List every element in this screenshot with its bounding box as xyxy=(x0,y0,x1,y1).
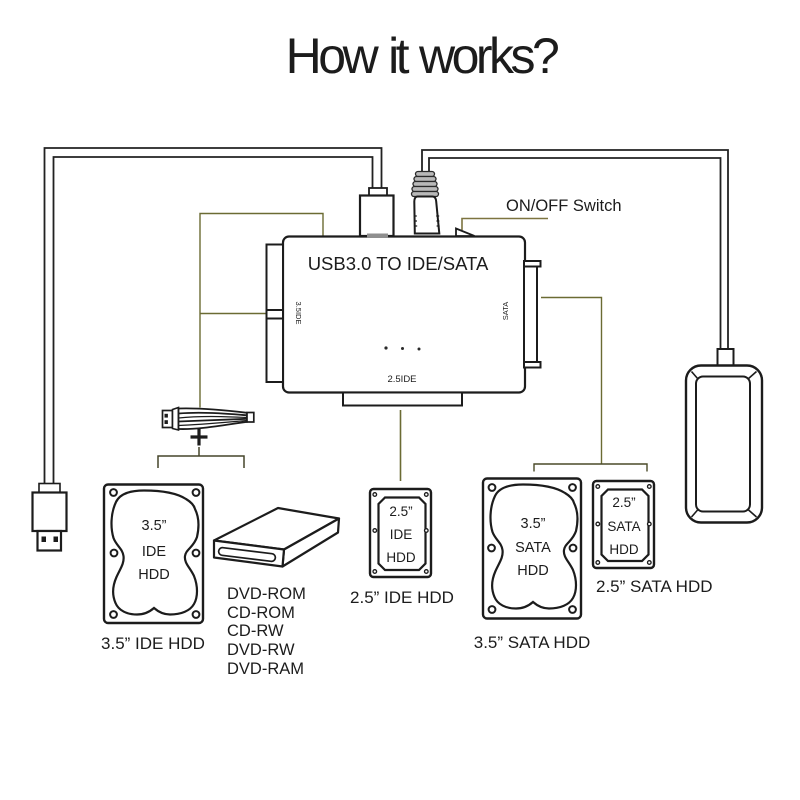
svg-text:3.5”: 3.5” xyxy=(521,516,546,532)
svg-text:DVD-ROM: DVD-ROM xyxy=(227,585,306,603)
svg-text:3.5” SATA HDD: 3.5” SATA HDD xyxy=(474,633,591,652)
svg-text:3.5” IDE HDD: 3.5” IDE HDD xyxy=(101,634,205,653)
svg-text:2.5”: 2.5” xyxy=(389,504,412,519)
svg-text:SATA: SATA xyxy=(607,519,640,534)
svg-text:3.5IDE: 3.5IDE xyxy=(294,302,303,325)
svg-text:ON/OFF Switch: ON/OFF Switch xyxy=(506,197,622,215)
svg-text:CD-ROM: CD-ROM xyxy=(227,604,295,622)
svg-text:2.5” IDE HDD: 2.5” IDE HDD xyxy=(350,588,454,607)
svg-text:IDE: IDE xyxy=(390,527,413,542)
svg-text:HDD: HDD xyxy=(386,550,415,565)
svg-text:CD-RW: CD-RW xyxy=(227,622,284,640)
svg-text:2.5”: 2.5” xyxy=(612,495,635,510)
svg-text:3.5”: 3.5” xyxy=(142,518,167,534)
svg-text:HDD: HDD xyxy=(138,567,169,583)
svg-text:IDE: IDE xyxy=(142,544,167,560)
svg-text:2.5” SATA HDD: 2.5” SATA HDD xyxy=(596,577,713,596)
svg-text:2.5IDE: 2.5IDE xyxy=(387,374,416,385)
svg-text:SATA: SATA xyxy=(501,302,510,320)
svg-text:HDD: HDD xyxy=(609,542,638,557)
svg-text:DVD-RW: DVD-RW xyxy=(227,641,295,659)
svg-text:How it works?: How it works? xyxy=(286,28,558,84)
svg-text:USB3.0 TO IDE/SATA: USB3.0 TO IDE/SATA xyxy=(308,253,489,274)
svg-text:SATA: SATA xyxy=(515,540,551,556)
svg-text:DVD-RAM: DVD-RAM xyxy=(227,660,304,678)
svg-text:HDD: HDD xyxy=(517,563,548,579)
